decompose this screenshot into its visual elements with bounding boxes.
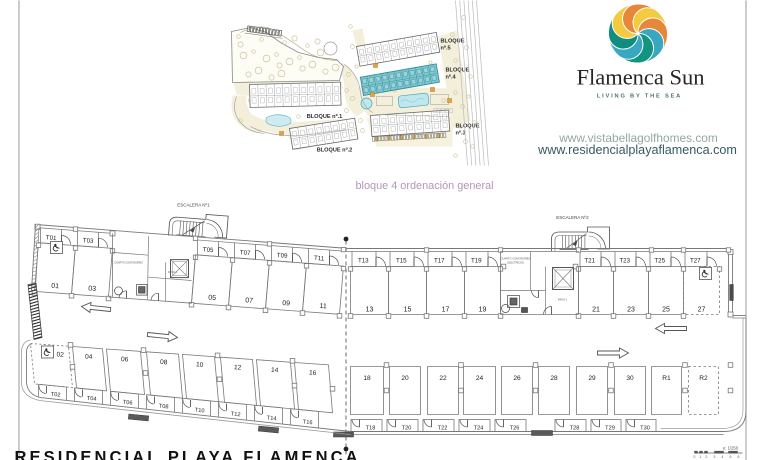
svg-text:T14: T14 bbox=[267, 415, 277, 422]
svg-text:T11: T11 bbox=[314, 255, 325, 263]
svg-text:11: 11 bbox=[319, 303, 327, 311]
svg-text:22: 22 bbox=[439, 375, 447, 382]
svg-text:T10: T10 bbox=[195, 408, 205, 415]
svg-text:28: 28 bbox=[550, 375, 558, 382]
svg-text:5: 5 bbox=[730, 455, 732, 459]
svg-text:PASO 1: PASO 1 bbox=[168, 271, 177, 274]
svg-text:R1: R1 bbox=[662, 375, 671, 382]
svg-text:21: 21 bbox=[592, 307, 600, 314]
svg-text:24: 24 bbox=[476, 375, 484, 382]
svg-text:29: 29 bbox=[588, 375, 596, 382]
svg-text:02: 02 bbox=[56, 351, 64, 359]
svg-text:T30: T30 bbox=[640, 426, 650, 432]
svg-text:bloque 4 ordenación general: bloque 4 ordenación general bbox=[356, 180, 494, 192]
svg-text:06: 06 bbox=[121, 356, 129, 364]
svg-text:LIVING BY THE SEA: LIVING BY THE SEA bbox=[597, 94, 682, 100]
svg-text:BLOQUE: BLOQUE bbox=[446, 68, 470, 74]
svg-text:17: 17 bbox=[442, 307, 450, 314]
svg-text:ESCALERA Nº2: ESCALERA Nº2 bbox=[556, 215, 589, 220]
svg-text:T07: T07 bbox=[240, 249, 252, 257]
svg-text:T03: T03 bbox=[83, 237, 95, 245]
svg-text:T13: T13 bbox=[358, 258, 369, 265]
svg-text:T25: T25 bbox=[654, 258, 665, 265]
svg-text:4: 4 bbox=[722, 455, 724, 459]
svg-text:www.residencialplayaflamenca.c: www.residencialplayaflamenca.com bbox=[537, 143, 737, 157]
svg-text:T05: T05 bbox=[203, 246, 215, 254]
svg-text:03: 03 bbox=[88, 285, 96, 293]
svg-text:T06: T06 bbox=[123, 400, 133, 407]
svg-text:30: 30 bbox=[626, 375, 634, 382]
svg-text:BLOQUE nº.2: BLOQUE nº.2 bbox=[317, 148, 353, 154]
svg-text:12: 12 bbox=[234, 364, 242, 372]
svg-text:CUARTO CONTADORES: CUARTO CONTADORES bbox=[501, 257, 531, 261]
svg-text:T26: T26 bbox=[510, 426, 520, 432]
svg-text:ELECTRICOS: ELECTRICOS bbox=[507, 261, 524, 265]
svg-text:07: 07 bbox=[245, 297, 253, 305]
svg-text:BLOQUE: BLOQUE bbox=[441, 39, 465, 45]
svg-text:ESCALERA Nº1: ESCALERA Nº1 bbox=[177, 203, 210, 208]
svg-text:RESIDENCIAL PLAYA FLAMENCA: RESIDENCIAL PLAYA FLAMENCA bbox=[15, 449, 361, 460]
svg-text:T21: T21 bbox=[584, 258, 595, 265]
svg-text:nº.3: nº.3 bbox=[456, 131, 466, 137]
svg-text:6: 6 bbox=[738, 455, 740, 459]
svg-text:T17: T17 bbox=[434, 258, 445, 265]
svg-text:T19: T19 bbox=[471, 258, 482, 265]
svg-text:T04: T04 bbox=[87, 396, 97, 403]
svg-text:19: 19 bbox=[479, 307, 487, 314]
svg-text:T29: T29 bbox=[605, 426, 615, 432]
svg-text:PASO 2: PASO 2 bbox=[558, 298, 568, 302]
svg-text:23: 23 bbox=[627, 307, 635, 314]
svg-text:T28: T28 bbox=[570, 426, 580, 432]
svg-text:T01: T01 bbox=[46, 234, 58, 242]
svg-text:2: 2 bbox=[706, 455, 708, 459]
svg-text:0: 0 bbox=[694, 455, 696, 459]
svg-text:T16: T16 bbox=[303, 419, 313, 426]
svg-text:25: 25 bbox=[662, 307, 670, 314]
svg-text:27: 27 bbox=[698, 307, 706, 314]
svg-text:01: 01 bbox=[51, 283, 59, 291]
svg-text:T27: T27 bbox=[690, 258, 701, 265]
svg-text:T12: T12 bbox=[231, 411, 241, 418]
svg-text:13: 13 bbox=[366, 307, 374, 314]
svg-text:BLOQUE: BLOQUE bbox=[456, 124, 480, 130]
svg-text:05: 05 bbox=[208, 295, 216, 303]
svg-text:CUARTO CONTADORES: CUARTO CONTADORES bbox=[114, 262, 143, 265]
svg-text:20: 20 bbox=[401, 375, 409, 382]
svg-text:T23: T23 bbox=[619, 258, 630, 265]
svg-text:10: 10 bbox=[196, 361, 204, 369]
svg-text:04: 04 bbox=[85, 353, 93, 361]
svg-text:08: 08 bbox=[160, 359, 168, 367]
svg-text:18: 18 bbox=[363, 375, 371, 382]
svg-text:e: 1/250: e: 1/250 bbox=[723, 446, 739, 451]
svg-text:3: 3 bbox=[714, 455, 716, 459]
svg-text:T18: T18 bbox=[366, 426, 376, 432]
svg-text:Flamenca Sun: Flamenca Sun bbox=[576, 65, 704, 90]
svg-text:T20: T20 bbox=[402, 426, 412, 432]
svg-text:09: 09 bbox=[282, 300, 290, 308]
svg-text:BLOQUE nº.1: BLOQUE nº.1 bbox=[307, 114, 343, 120]
svg-text:nº.4: nº.4 bbox=[446, 75, 457, 81]
svg-text:T15: T15 bbox=[396, 258, 407, 265]
svg-text:T09: T09 bbox=[277, 252, 289, 260]
svg-text:nº.5: nº.5 bbox=[441, 46, 451, 52]
svg-text:1: 1 bbox=[700, 455, 702, 459]
svg-text:T24: T24 bbox=[474, 426, 484, 432]
svg-text:15: 15 bbox=[404, 307, 412, 314]
svg-text:14: 14 bbox=[271, 367, 279, 375]
svg-text:T02: T02 bbox=[51, 392, 61, 399]
svg-text:T08: T08 bbox=[159, 404, 169, 411]
svg-text:26: 26 bbox=[513, 375, 521, 382]
svg-text:T22: T22 bbox=[438, 426, 448, 432]
svg-text:R2: R2 bbox=[699, 375, 708, 382]
svg-text:16: 16 bbox=[309, 370, 317, 378]
